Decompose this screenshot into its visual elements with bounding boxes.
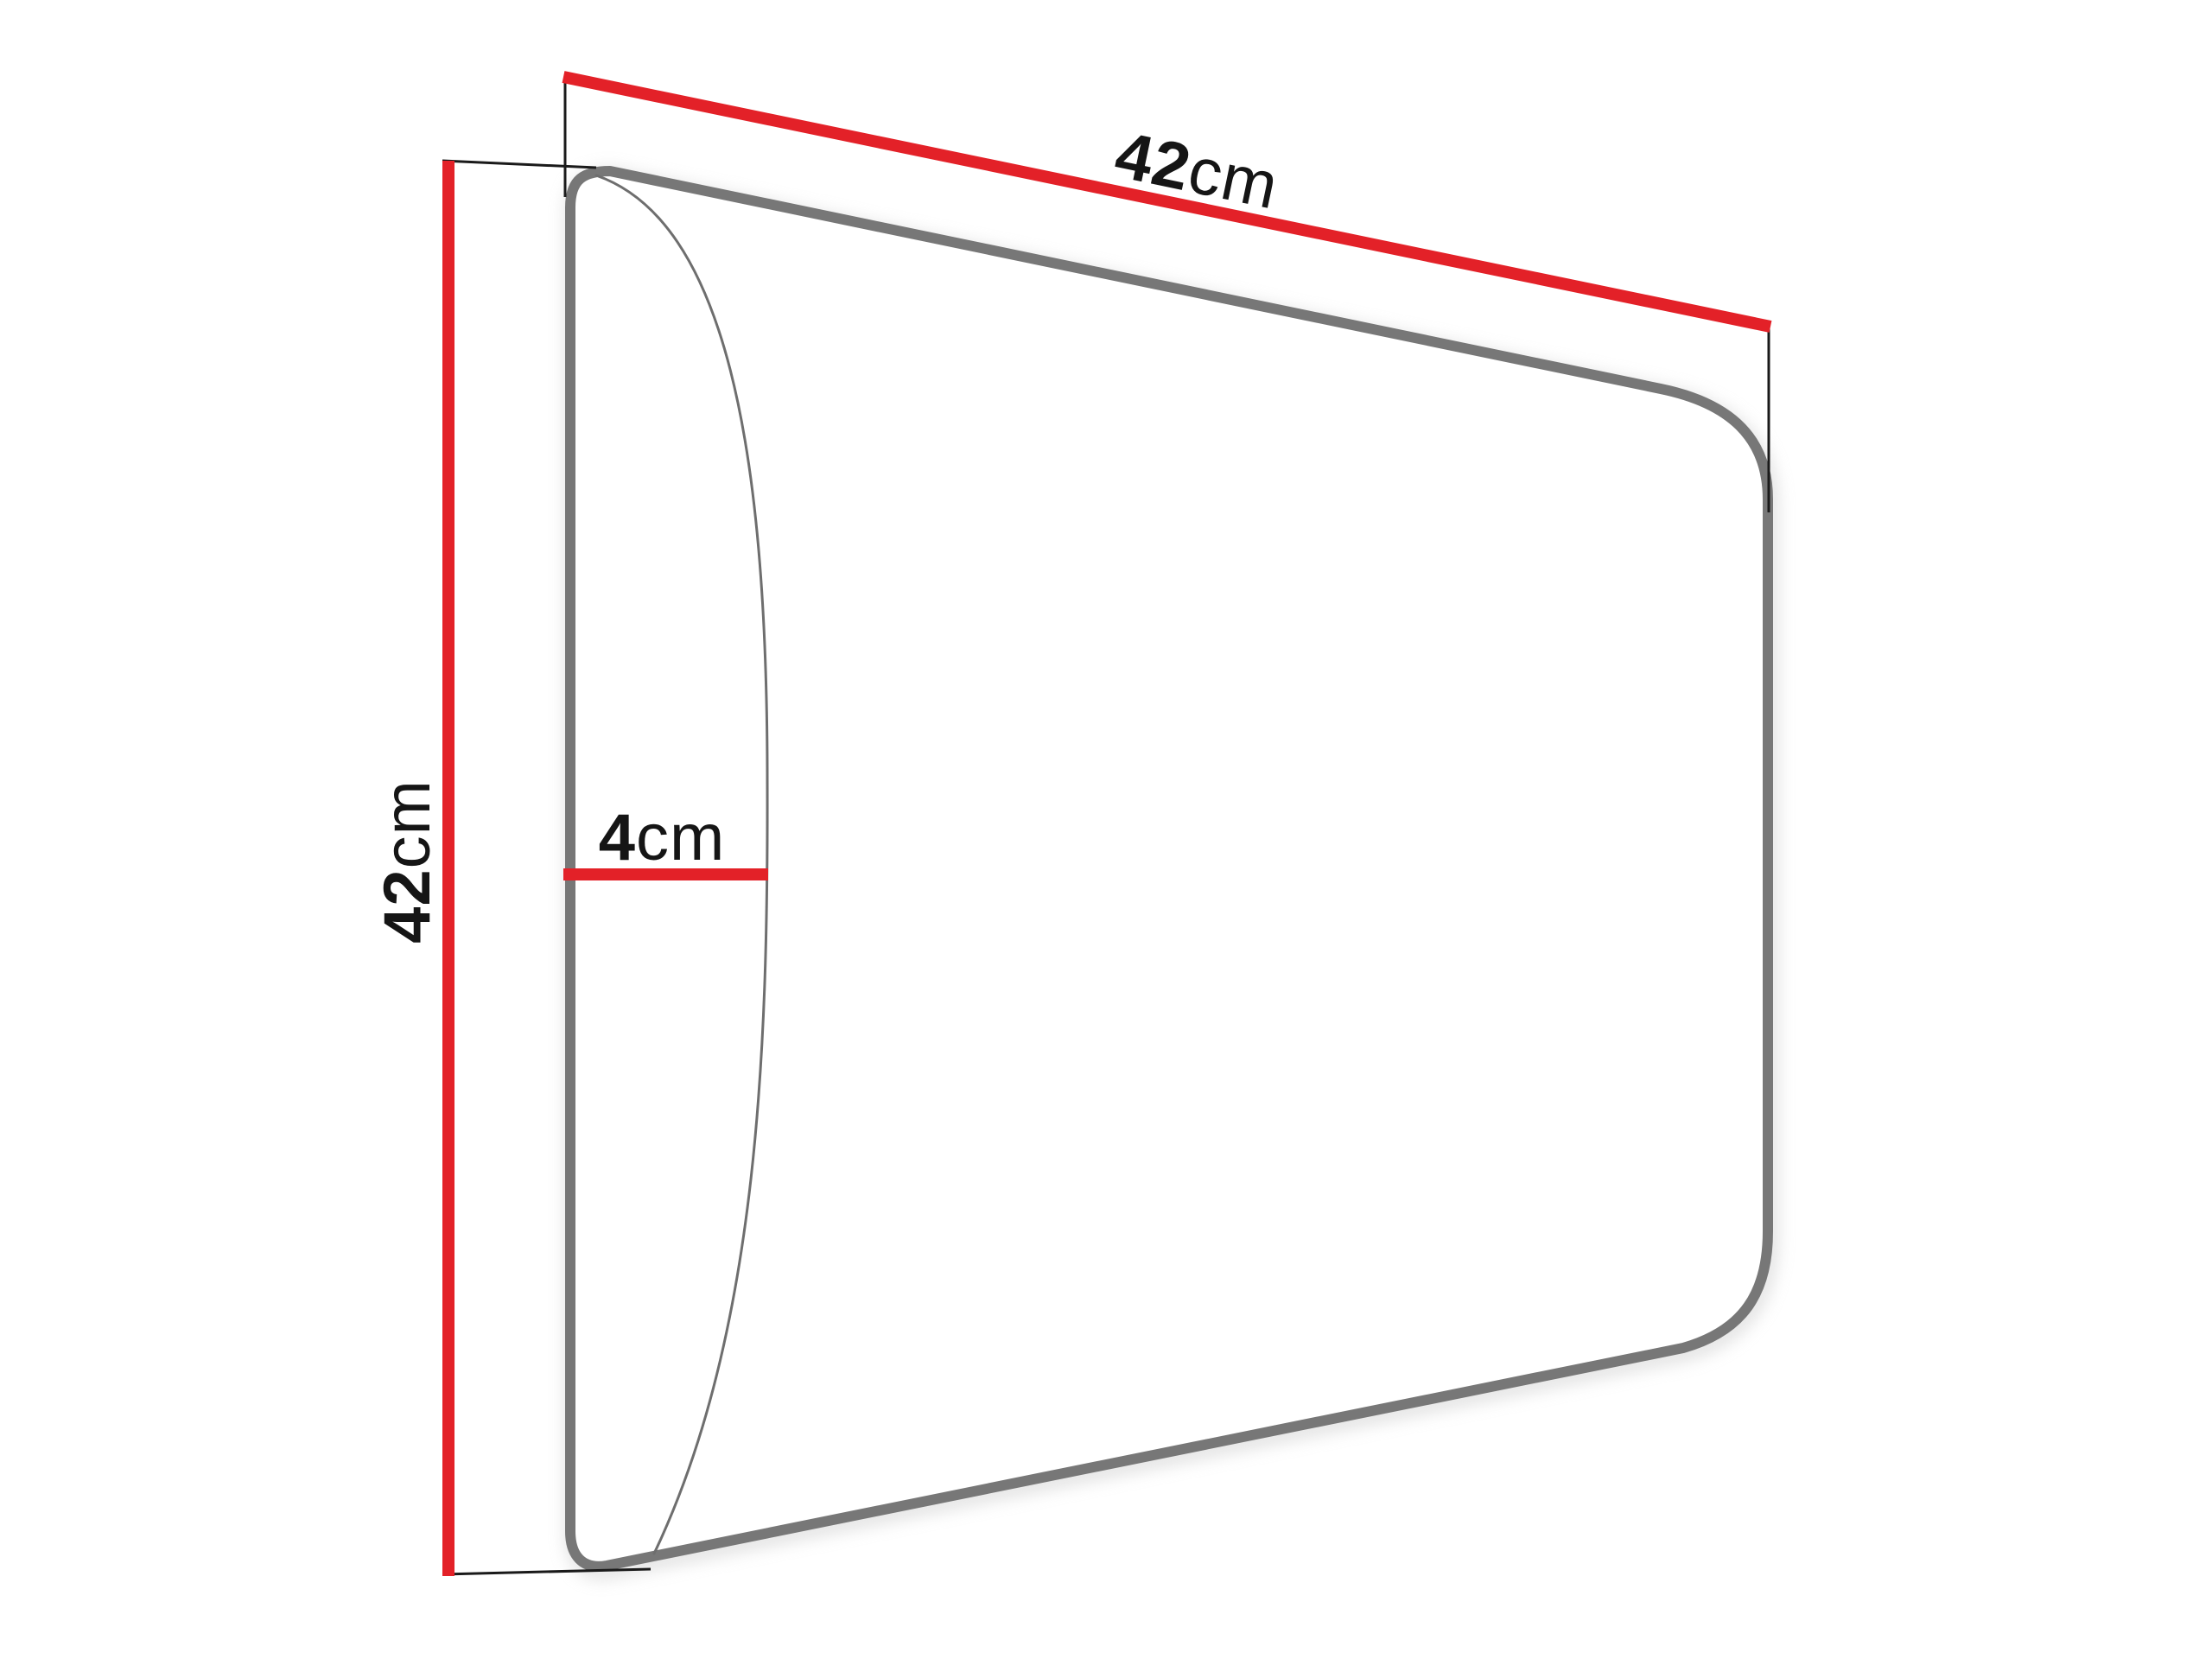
dimension-diagram: 42cm 42cm 4cm xyxy=(0,0,2212,1659)
depth-dimension-label: 4cm xyxy=(599,805,726,871)
extension-line-top-left-horizontal xyxy=(442,161,596,168)
depth-value: 4 xyxy=(599,801,636,874)
height-unit: cm xyxy=(371,779,444,868)
diagram-drawing xyxy=(0,0,2212,1659)
height-value: 42 xyxy=(371,868,444,944)
height-dimension-label: 42cm xyxy=(375,779,441,944)
depth-unit: cm xyxy=(636,801,725,874)
